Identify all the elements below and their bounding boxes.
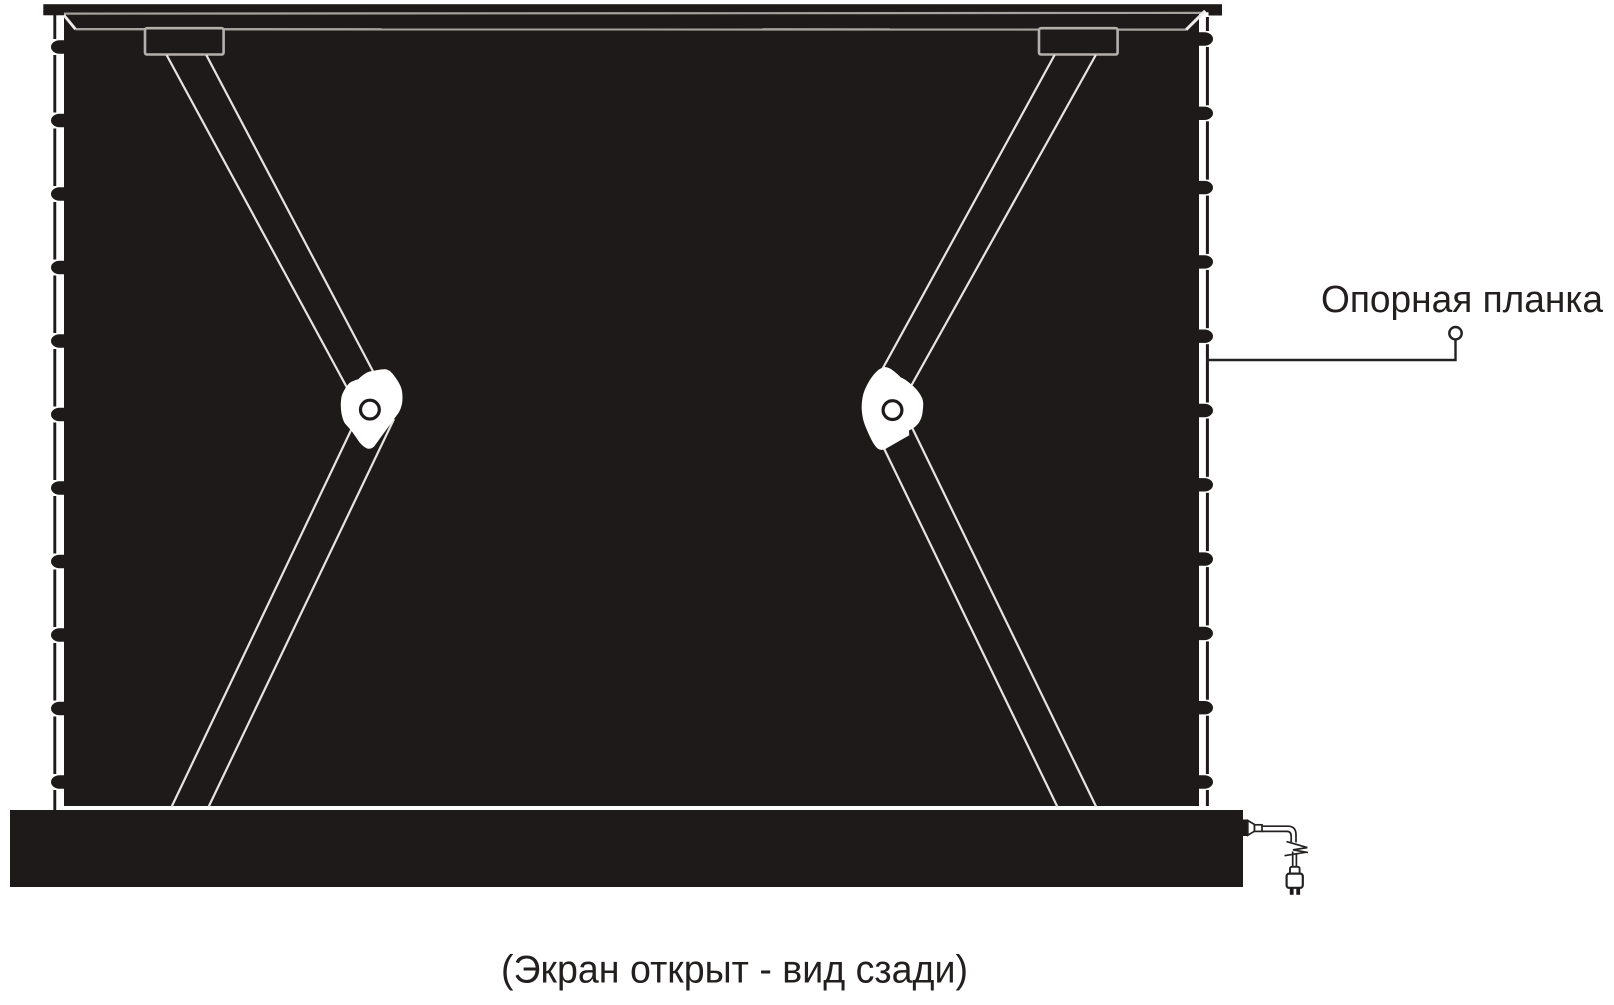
svg-text:(Экран открыт - вид сзади): (Экран открыт - вид сзади): [501, 948, 968, 991]
svg-text:Опорная планка: Опорная планка: [1321, 279, 1604, 321]
